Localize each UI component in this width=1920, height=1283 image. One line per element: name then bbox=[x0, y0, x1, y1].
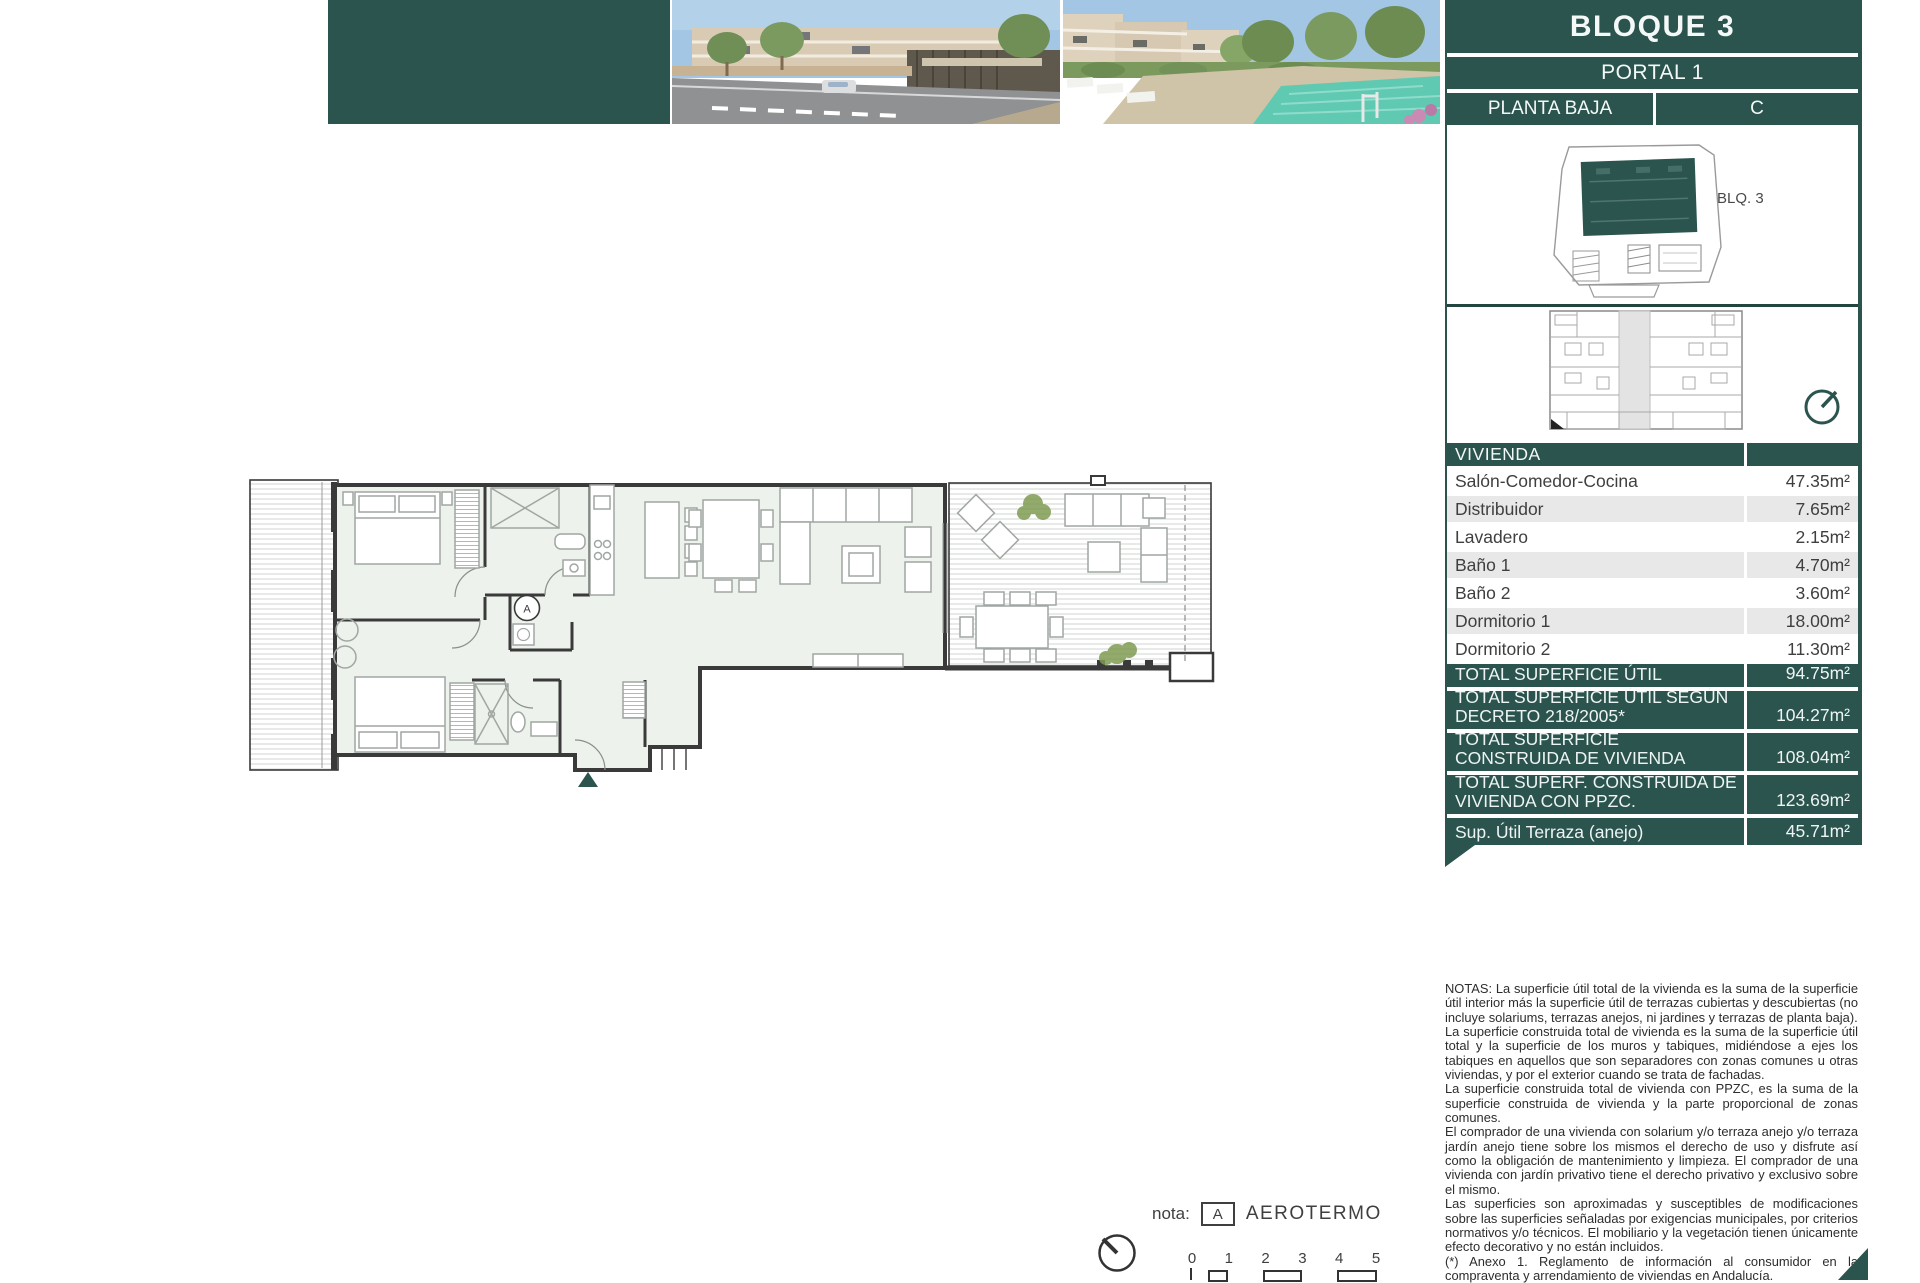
total-value: 45.71m² bbox=[1747, 818, 1858, 845]
row-label: Dormitorio 2 bbox=[1447, 636, 1744, 662]
scale-tick-label: 3 bbox=[1296, 1250, 1308, 1267]
nota-label: nota: bbox=[1152, 1204, 1190, 1224]
note-paragraph: El comprador de una vivienda con solariu… bbox=[1445, 1125, 1858, 1197]
portal-title: PORTAL 1 bbox=[1447, 57, 1858, 89]
scale-tick-label: 2 bbox=[1260, 1250, 1272, 1267]
stair-core-highlight bbox=[1619, 311, 1650, 429]
terrace-right bbox=[945, 476, 1213, 681]
site-plan-drawing: BLQ. 3 bbox=[1447, 125, 1858, 304]
photo-pool-render bbox=[1063, 0, 1440, 124]
scale-segment bbox=[1263, 1270, 1302, 1282]
total-label: TOTAL SUPERFICIE ÚTIL bbox=[1447, 664, 1744, 687]
table-header-row: VIVIENDA bbox=[1447, 443, 1858, 466]
unit-letter-label: C bbox=[1656, 93, 1858, 125]
row-label: Dormitorio 1 bbox=[1447, 608, 1744, 634]
pool-photo-illustration bbox=[1063, 0, 1440, 124]
total-value: 94.75m² bbox=[1747, 664, 1858, 687]
table-corner-fold bbox=[1445, 845, 1475, 867]
table-row: Baño 2 3.60m² bbox=[1447, 580, 1858, 606]
scale-tick bbox=[1190, 1268, 1192, 1280]
unit-info-panel: BLOQUE 3 PORTAL 1 PLANTA BAJA C bbox=[1445, 0, 1862, 845]
floor-label: PLANTA BAJA bbox=[1447, 93, 1653, 125]
row-value: 18.00m² bbox=[1747, 608, 1858, 634]
legal-notes: NOTAS: La superficie útil total de la vi… bbox=[1445, 982, 1858, 1283]
table-row: Dormitorio 2 11.30m² bbox=[1447, 636, 1858, 662]
scale-labels: 0 1 2 3 4 5 bbox=[1186, 1250, 1382, 1267]
total-row: TOTAL SUPERFICIE ÚTIL 94.75m² bbox=[1447, 664, 1858, 687]
floor-unit-row: PLANTA BAJA C bbox=[1447, 93, 1858, 125]
page-corner-fold bbox=[1838, 1248, 1868, 1280]
entrance-arrow-icon bbox=[578, 772, 598, 787]
note-paragraph: Las superficies son aproximadas y suscep… bbox=[1445, 1197, 1858, 1254]
table-row: Dormitorio 1 18.00m² bbox=[1447, 608, 1858, 634]
row-value: 11.30m² bbox=[1747, 636, 1858, 662]
total-label: TOTAL SUPERFICIE CONSTRUIDA DE VIVIENDA bbox=[1447, 733, 1744, 771]
row-label: Distribuidor bbox=[1447, 496, 1744, 522]
row-label: Baño 2 bbox=[1447, 580, 1744, 606]
block-title: BLOQUE 3 bbox=[1447, 0, 1858, 53]
scale-tick-label: 1 bbox=[1223, 1250, 1235, 1267]
brand-color-block bbox=[328, 0, 670, 124]
total-label: Sup. Útil Terraza (anejo) bbox=[1447, 818, 1744, 845]
terrace-left bbox=[250, 480, 338, 770]
row-label: Salón-Comedor-Cocina bbox=[1447, 468, 1744, 494]
plan-sheet-page: { "header": { "block_title": "BLOQUE 3",… bbox=[0, 0, 1920, 1280]
scale-tick-label: 4 bbox=[1333, 1250, 1345, 1267]
row-value: 2.15m² bbox=[1747, 524, 1858, 550]
scale-bar: 0 1 2 3 4 5 bbox=[1186, 1250, 1396, 1280]
key-plan-box bbox=[1447, 307, 1858, 438]
svg-text:A: A bbox=[523, 604, 531, 616]
total-row: TOTAL SUPERFICIE CONSTRUIDA DE VIVIENDA … bbox=[1447, 733, 1858, 771]
total-value: 104.27m² bbox=[1747, 691, 1858, 729]
row-value: 47.35m² bbox=[1747, 468, 1858, 494]
building-footprint bbox=[1581, 158, 1698, 236]
note-paragraph: La superficie construida total de vivien… bbox=[1445, 1082, 1858, 1125]
bedroom1-furniture bbox=[343, 490, 479, 568]
total-label: TOTAL SUPERFICIE ÚTIL SEGÚN DECRETO 218/… bbox=[1447, 691, 1744, 729]
scale-segment bbox=[1208, 1270, 1228, 1282]
table-row: Distribuidor 7.65m² bbox=[1447, 496, 1858, 522]
total-row: Sup. Útil Terraza (anejo) 45.71m² bbox=[1447, 818, 1858, 845]
total-label: TOTAL SUPERF. CONSTRUIDA DE VIVIENDA CON… bbox=[1447, 775, 1744, 814]
total-value: 108.04m² bbox=[1747, 733, 1858, 771]
note-paragraph: NOTAS: La superficie útil total de la vi… bbox=[1445, 982, 1858, 1025]
table-header-value-cell bbox=[1747, 443, 1858, 466]
north-arrow-icon bbox=[1096, 1231, 1140, 1280]
row-value: 4.70m² bbox=[1747, 552, 1858, 578]
table-row: Salón-Comedor-Cocina 47.35m² bbox=[1447, 468, 1858, 494]
key-plan-drawing bbox=[1447, 307, 1858, 438]
aerotermo-legend: nota: A AEROTERMO bbox=[1152, 1202, 1382, 1226]
total-value: 123.69m² bbox=[1747, 775, 1858, 814]
pool-shape bbox=[1659, 245, 1701, 271]
compass-icon bbox=[1806, 391, 1838, 423]
aerotermo-marker-box: A bbox=[1201, 1202, 1235, 1226]
apartment-floor-plan: A bbox=[245, 472, 1220, 792]
total-row: TOTAL SUPERFICIE ÚTIL SEGÚN DECRETO 218/… bbox=[1447, 691, 1858, 729]
row-label: Baño 1 bbox=[1447, 552, 1744, 578]
note-paragraph: (*) Anexo 1. Reglamento de información a… bbox=[1445, 1255, 1858, 1283]
total-row: TOTAL SUPERF. CONSTRUIDA DE VIVIENDA CON… bbox=[1447, 775, 1858, 814]
scale-tick-label: 5 bbox=[1370, 1250, 1382, 1267]
aerotermo-text: AEROTERMO bbox=[1246, 1203, 1382, 1225]
scale-segment bbox=[1337, 1270, 1377, 1282]
table-header-label: VIVIENDA bbox=[1447, 443, 1744, 466]
table-row: Lavadero 2.15m² bbox=[1447, 524, 1858, 550]
photo-street-render bbox=[672, 0, 1060, 124]
site-plan-box: BLQ. 3 bbox=[1447, 125, 1858, 304]
site-plan-block-label: BLQ. 3 bbox=[1717, 190, 1764, 207]
street-photo-illustration bbox=[672, 0, 1060, 124]
scale-tick-label: 0 bbox=[1186, 1250, 1198, 1267]
row-value: 7.65m² bbox=[1747, 496, 1858, 522]
table-row: Baño 1 4.70m² bbox=[1447, 552, 1858, 578]
note-paragraph: La superficie construida total de vivien… bbox=[1445, 1025, 1858, 1082]
row-label: Lavadero bbox=[1447, 524, 1744, 550]
row-value: 3.60m² bbox=[1747, 580, 1858, 606]
